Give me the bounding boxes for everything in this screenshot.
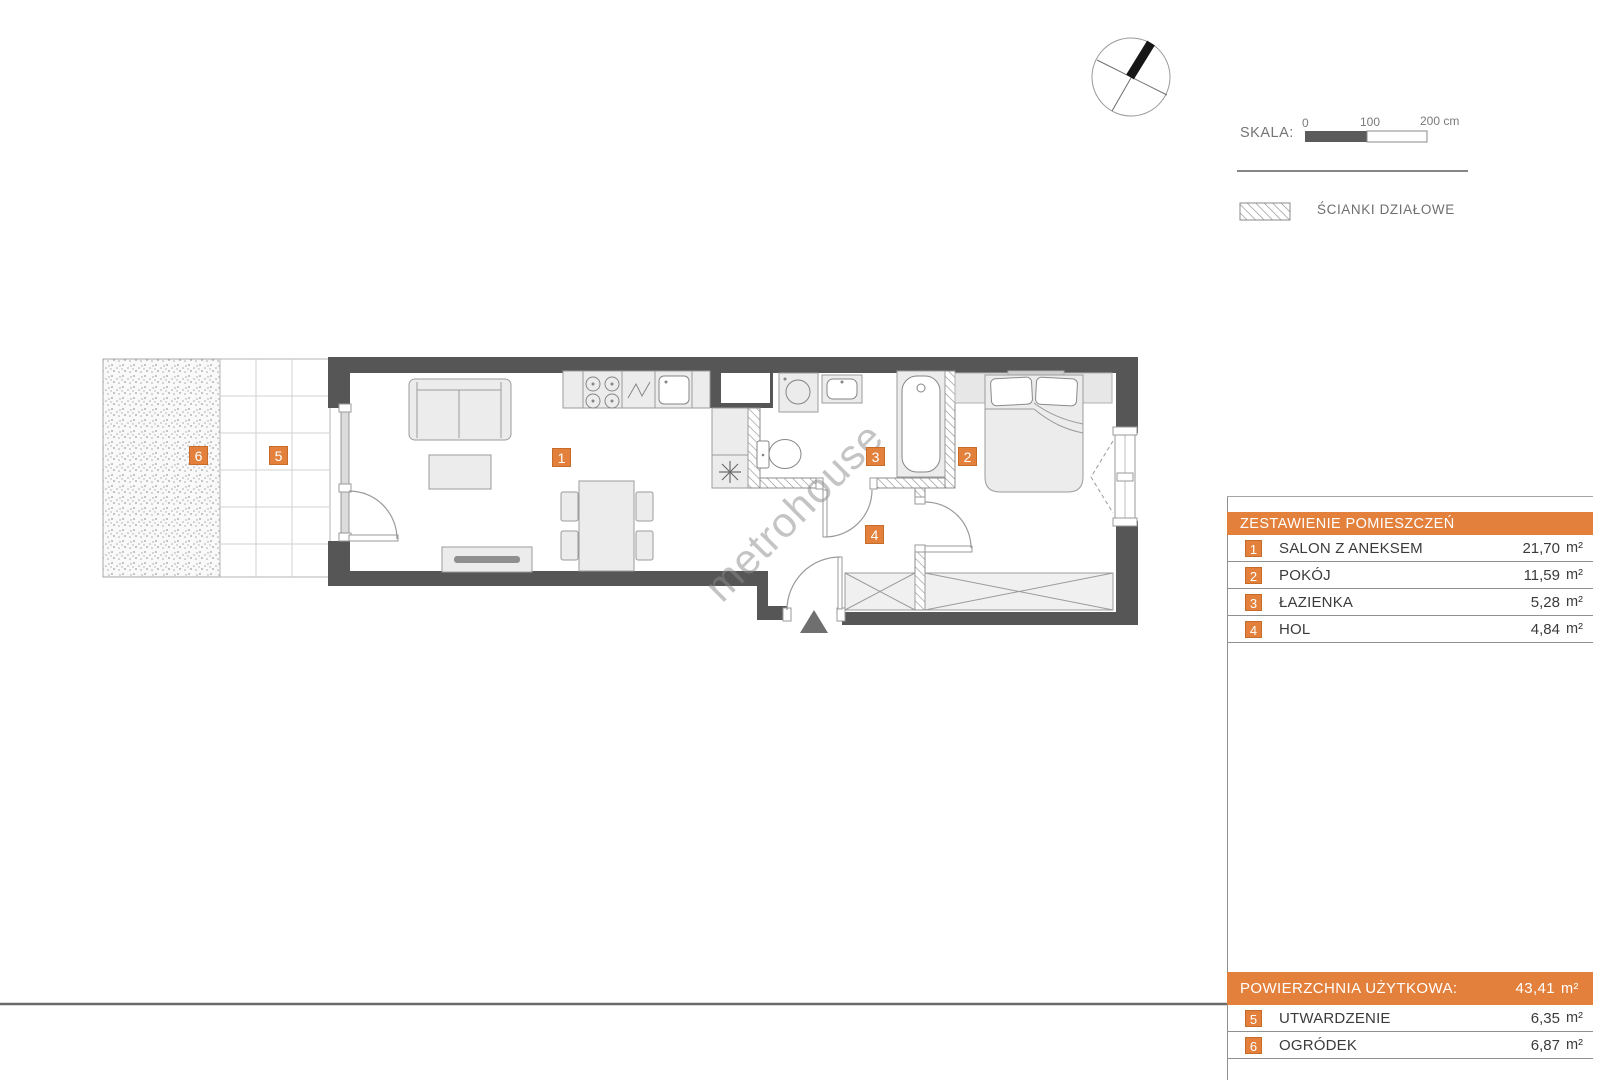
scale-bar bbox=[1305, 131, 1427, 142]
row-unit: m² bbox=[1566, 594, 1590, 610]
plan-badge-ogrodek: 6 bbox=[189, 446, 208, 465]
scale-tick-200: 200 cm bbox=[1420, 114, 1459, 128]
shaft bbox=[721, 373, 770, 403]
row-badge: 6 bbox=[1245, 1037, 1262, 1054]
row-unit: m² bbox=[1566, 1037, 1590, 1053]
bedroom-window bbox=[1091, 427, 1137, 526]
row-name: UTWARDZENIE bbox=[1279, 1010, 1391, 1027]
kitchen-sink bbox=[659, 376, 689, 404]
plan-badge-pokoj: 2 bbox=[958, 447, 977, 466]
row-name: HOL bbox=[1279, 621, 1310, 638]
entrance-arrow bbox=[800, 610, 828, 633]
scale-tick-0: 0 bbox=[1302, 116, 1309, 130]
table-row: 1 SALON Z ANEKSEM 21,70 m² bbox=[1227, 535, 1593, 562]
plan-badge-salon: 1 bbox=[552, 448, 571, 467]
table-row: 5 UTWARDZENIE 6,35 m² bbox=[1227, 1005, 1593, 1032]
tv-stand bbox=[442, 547, 532, 572]
row-area: 6,35 bbox=[1531, 1010, 1560, 1027]
plan-badge-utwardzenie: 5 bbox=[269, 446, 288, 465]
row-area: 4,84 bbox=[1531, 621, 1560, 638]
plan-badge-lazienka: 3 bbox=[866, 447, 885, 466]
rooms-table-title: ZESTAWIENIE POMIESZCZEŃ bbox=[1240, 516, 1455, 532]
summary-table: POWIERZCHNIA UŻYTKOWA: 43,41 m² 5 UTWARD… bbox=[1227, 972, 1593, 1059]
pillow bbox=[990, 377, 1032, 406]
table-row: 6 OGRÓDEK 6,87 m² bbox=[1227, 1032, 1593, 1059]
scale-label: SKALA: bbox=[1240, 125, 1294, 141]
coffee-table bbox=[429, 455, 491, 489]
rooms-table-header: ZESTAWIENIE POMIESZCZEŃ bbox=[1227, 512, 1593, 535]
row-badge: 4 bbox=[1245, 621, 1262, 638]
row-unit: m² bbox=[1566, 621, 1590, 637]
table-row: 4 HOL 4,84 m² bbox=[1227, 616, 1593, 643]
bedroom bbox=[955, 371, 1112, 492]
summary-area: 43,41 bbox=[1515, 980, 1555, 997]
rooms-table: ZESTAWIENIE POMIESZCZEŃ 1 SALON Z ANEKSE… bbox=[1227, 512, 1593, 643]
wardrobes bbox=[845, 573, 1113, 610]
partition-swatch bbox=[1240, 203, 1290, 220]
balcony-door bbox=[339, 404, 398, 541]
row-unit: m² bbox=[1566, 540, 1590, 556]
row-name: ŁAZIENKA bbox=[1279, 594, 1353, 611]
row-name: POKÓJ bbox=[1279, 567, 1331, 584]
row-area: 5,28 bbox=[1531, 594, 1560, 611]
row-unit: m² bbox=[1566, 567, 1590, 583]
dining-set bbox=[561, 481, 653, 571]
floorplan-page: metrohouse 1 2 3 4 5 6 SKALA: 0 100 200 … bbox=[0, 0, 1603, 1080]
summary-table-header: POWIERZCHNIA UŻYTKOWA: 43,41 m² bbox=[1227, 972, 1593, 1005]
sofa bbox=[409, 379, 511, 440]
row-name: OGRÓDEK bbox=[1279, 1037, 1357, 1054]
row-area: 6,87 bbox=[1531, 1037, 1560, 1054]
fridge-snowflake-icon bbox=[719, 461, 741, 483]
row-badge: 5 bbox=[1245, 1010, 1262, 1027]
row-badge: 1 bbox=[1245, 540, 1262, 557]
row-badge: 2 bbox=[1245, 567, 1262, 584]
plan-badge-hol: 4 bbox=[865, 525, 884, 544]
row-unit: m² bbox=[1566, 1010, 1590, 1026]
table-row: 3 ŁAZIENKA 5,28 m² bbox=[1227, 589, 1593, 616]
row-area: 11,59 bbox=[1524, 567, 1560, 584]
entrance-door bbox=[783, 557, 845, 633]
row-area: 21,70 bbox=[1522, 540, 1560, 557]
bedroom-door bbox=[915, 497, 972, 552]
partition-walls-label: ŚCIANKI DZIAŁOWE bbox=[1317, 202, 1455, 217]
garden-area bbox=[103, 359, 220, 577]
toilet bbox=[757, 440, 801, 469]
compass-icon bbox=[1092, 38, 1170, 116]
row-name: SALON Z ANEKSEM bbox=[1279, 540, 1423, 557]
table-row: 2 POKÓJ 11,59 m² bbox=[1227, 562, 1593, 589]
row-badge: 3 bbox=[1245, 594, 1262, 611]
terrace-area bbox=[220, 359, 330, 577]
summary-unit: m² bbox=[1561, 981, 1585, 997]
summary-title: POWIERZCHNIA UŻYTKOWA: bbox=[1240, 980, 1457, 997]
scale-tick-100: 100 bbox=[1360, 115, 1380, 129]
pillow bbox=[1035, 377, 1077, 406]
